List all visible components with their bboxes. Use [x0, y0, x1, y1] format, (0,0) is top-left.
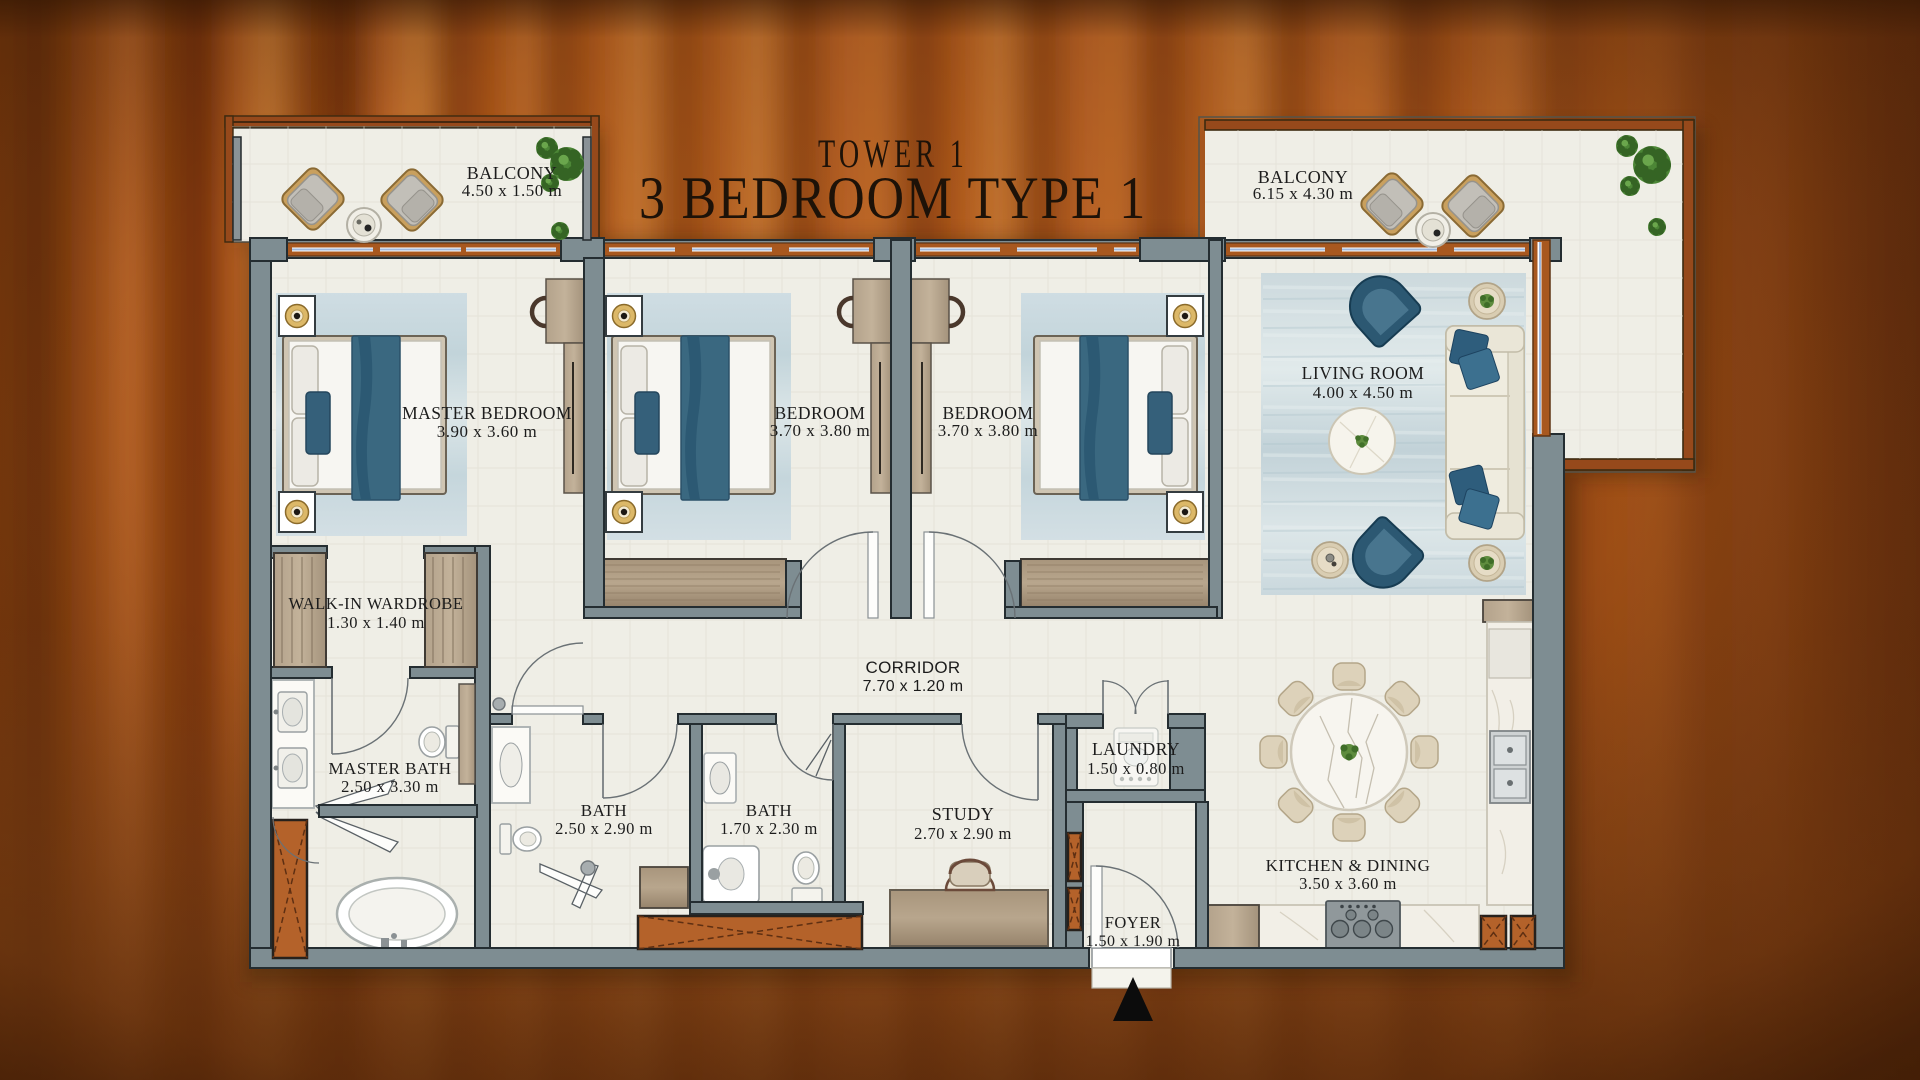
- svg-text:7.70 x 1.20 m: 7.70 x 1.20 m: [863, 678, 964, 695]
- svg-text:2.70 x 2.90 m: 2.70 x 2.90 m: [914, 824, 1012, 843]
- svg-text:1.50 x 0.80 m: 1.50 x 0.80 m: [1087, 759, 1185, 778]
- svg-text:4.00 x 4.50 m: 4.00 x 4.50 m: [1313, 383, 1413, 402]
- svg-text:BATH: BATH: [746, 801, 792, 820]
- svg-text:3.50 x 3.60 m: 3.50 x 3.60 m: [1299, 874, 1397, 893]
- svg-text:FOYER: FOYER: [1105, 913, 1162, 932]
- svg-text:3.90 x 3.60 m: 3.90 x 3.60 m: [437, 422, 537, 441]
- svg-text:CORRIDOR: CORRIDOR: [866, 658, 961, 677]
- svg-text:BATH: BATH: [581, 801, 627, 820]
- svg-text:MASTER BEDROOM: MASTER BEDROOM: [402, 403, 572, 423]
- svg-text:KITCHEN & DINING: KITCHEN & DINING: [1266, 856, 1431, 875]
- svg-text:BALCONY: BALCONY: [467, 163, 558, 183]
- svg-text:4.50 x 1.50 m: 4.50 x 1.50 m: [462, 181, 562, 200]
- svg-text:BEDROOM: BEDROOM: [942, 403, 1033, 423]
- svg-text:6.15 x 4.30 m: 6.15 x 4.30 m: [1253, 184, 1353, 203]
- svg-text:1.50 x 1.90 m: 1.50 x 1.90 m: [1086, 933, 1181, 950]
- svg-text:3.70 x 3.80 m: 3.70 x 3.80 m: [938, 421, 1038, 440]
- svg-text:BEDROOM: BEDROOM: [774, 403, 865, 423]
- svg-text:LAUNDRY: LAUNDRY: [1092, 739, 1180, 759]
- svg-text:STUDY: STUDY: [932, 804, 995, 824]
- svg-text:2.50 x 3.30 m: 2.50 x 3.30 m: [341, 777, 439, 796]
- svg-text:1.70 x 2.30 m: 1.70 x 2.30 m: [720, 819, 818, 838]
- svg-text:3.70 x 3.80 m: 3.70 x 3.80 m: [770, 421, 870, 440]
- svg-text:WALK-IN WARDROBE: WALK-IN WARDROBE: [289, 594, 464, 613]
- svg-text:LIVING ROOM: LIVING ROOM: [1302, 363, 1425, 383]
- svg-text:2.50 x 2.90 m: 2.50 x 2.90 m: [555, 819, 653, 838]
- svg-text:3 BEDROOM TYPE 1: 3 BEDROOM TYPE 1: [639, 165, 1147, 231]
- svg-text:MASTER BATH: MASTER BATH: [328, 759, 451, 778]
- svg-text:1.30 x 1.40 m: 1.30 x 1.40 m: [327, 613, 425, 632]
